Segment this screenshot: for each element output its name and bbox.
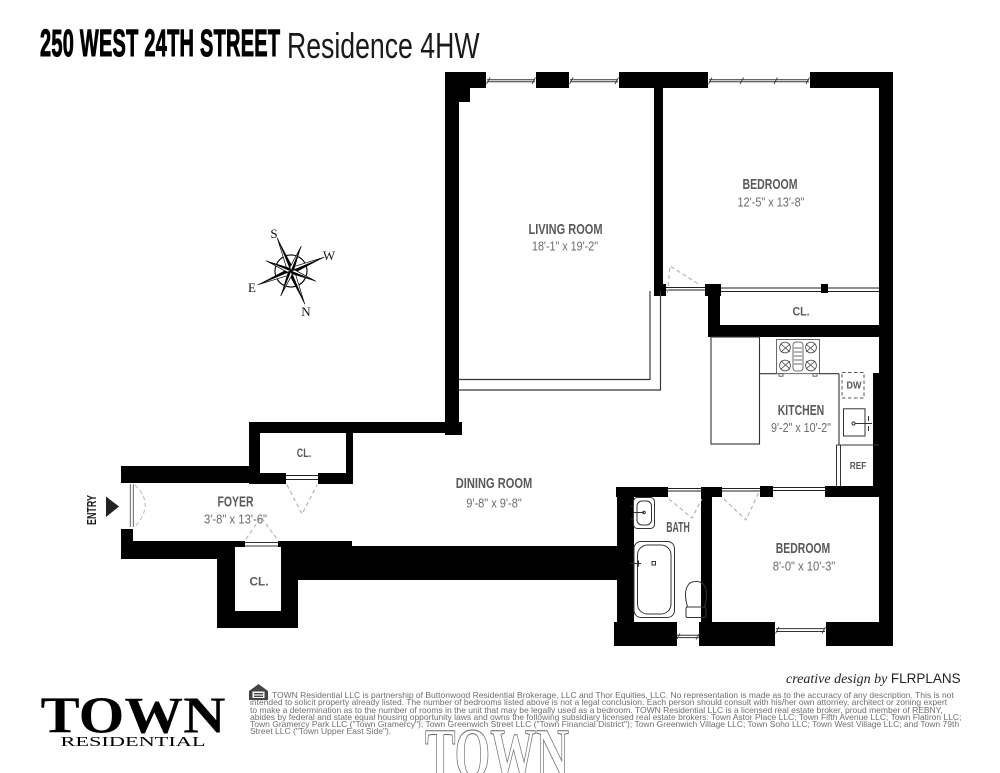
svg-text:RESIDENTIAL: RESIDENTIAL	[61, 734, 206, 749]
